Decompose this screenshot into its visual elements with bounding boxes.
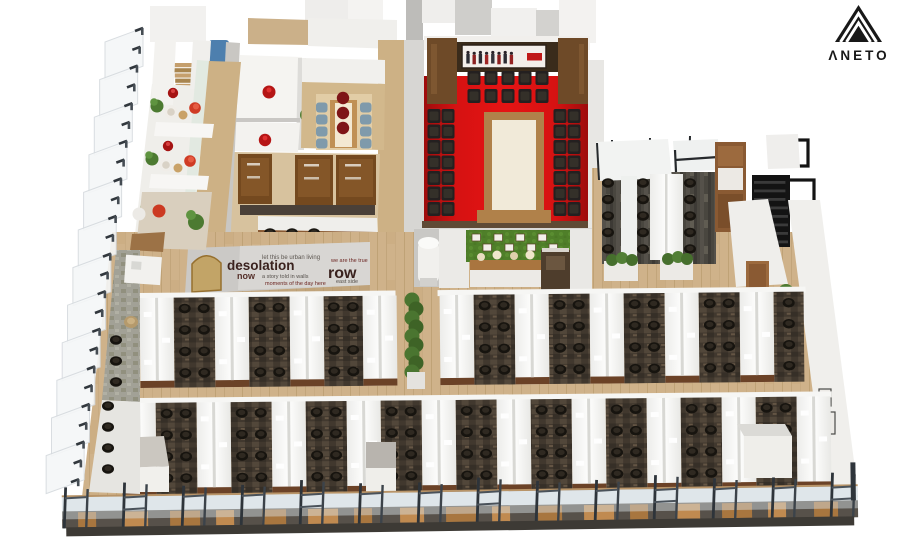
svg-text:moments of the day here: moments of the day here	[265, 281, 326, 287]
svg-text:east side: east side	[336, 279, 358, 285]
svg-text:a story told in walls: a story told in walls	[262, 274, 309, 280]
svg-text:let this be urban living: let this be urban living	[262, 255, 320, 261]
svg-text:we are the true: we are the true	[330, 258, 368, 264]
svg-text:now: now	[237, 271, 256, 281]
svg-text:ΛNETO: ΛNETO	[828, 48, 889, 63]
